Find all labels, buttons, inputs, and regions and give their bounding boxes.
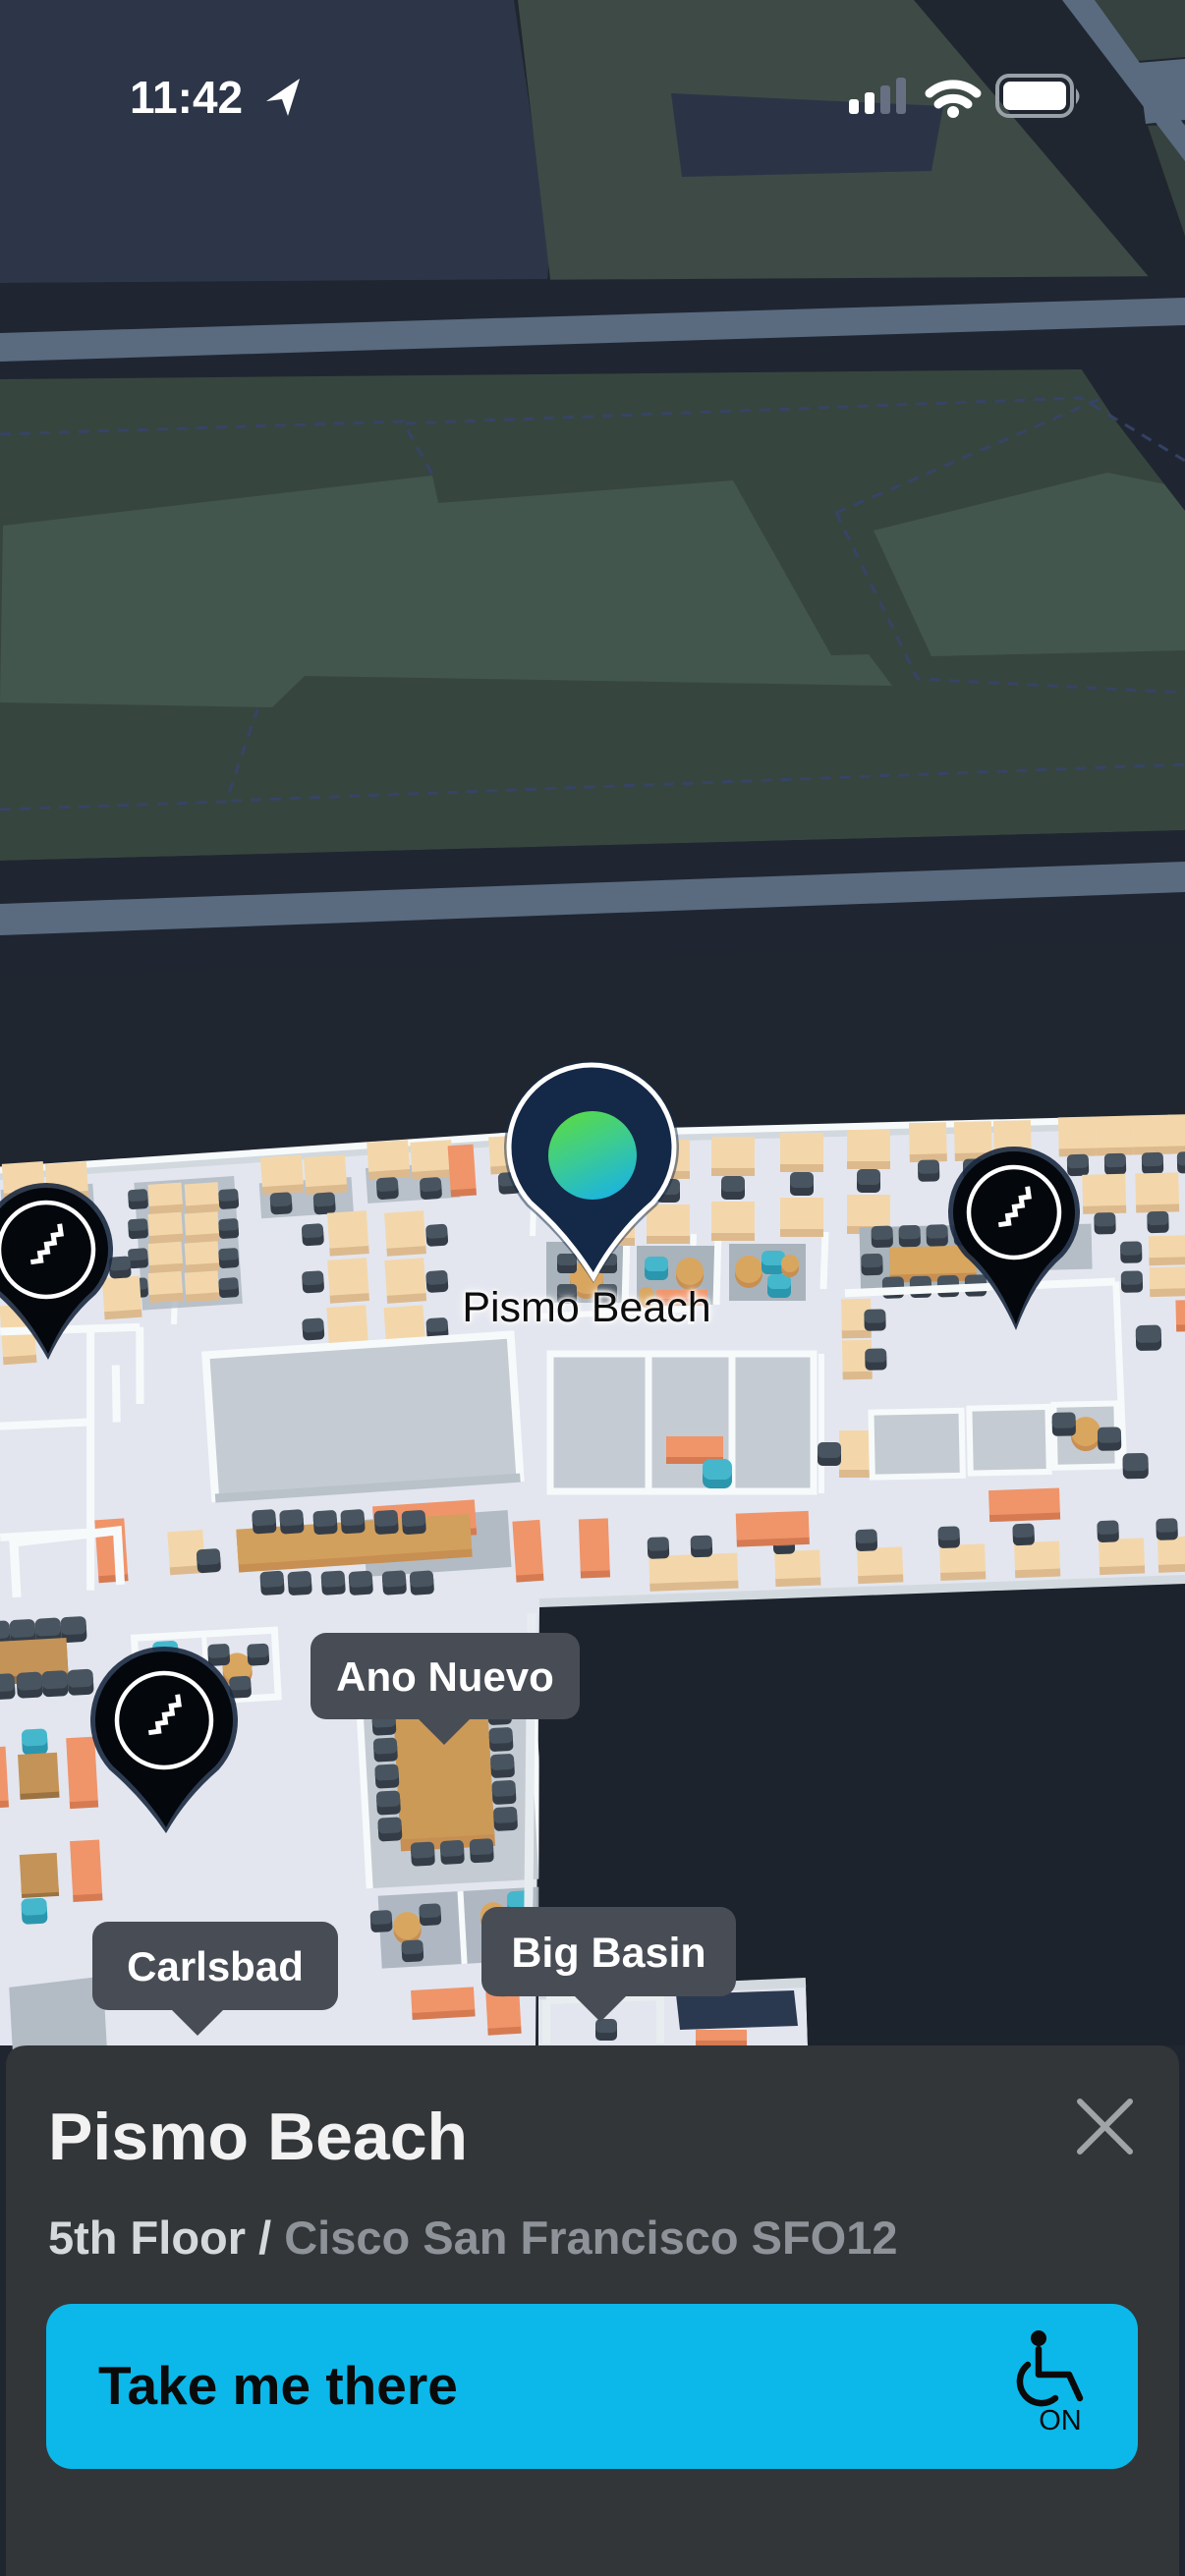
- svg-text:ON: ON: [1039, 2405, 1082, 2436]
- svg-text:Pismo Beach: Pismo Beach: [48, 2100, 468, 2174]
- svg-text:Big Basin: Big Basin: [511, 1930, 705, 1977]
- svg-text:5th Floor / Cisco San Francisc: 5th Floor / Cisco San Francisco SFO12: [48, 2212, 898, 2264]
- svg-text:Take me there: Take me there: [98, 2355, 458, 2416]
- svg-text:Carlsbad: Carlsbad: [127, 1943, 304, 1989]
- svg-text:11:42: 11:42: [130, 72, 243, 123]
- svg-text:Pismo Beach: Pismo Beach: [462, 1284, 710, 1331]
- svg-text:Ano Nuevo: Ano Nuevo: [336, 1653, 554, 1700]
